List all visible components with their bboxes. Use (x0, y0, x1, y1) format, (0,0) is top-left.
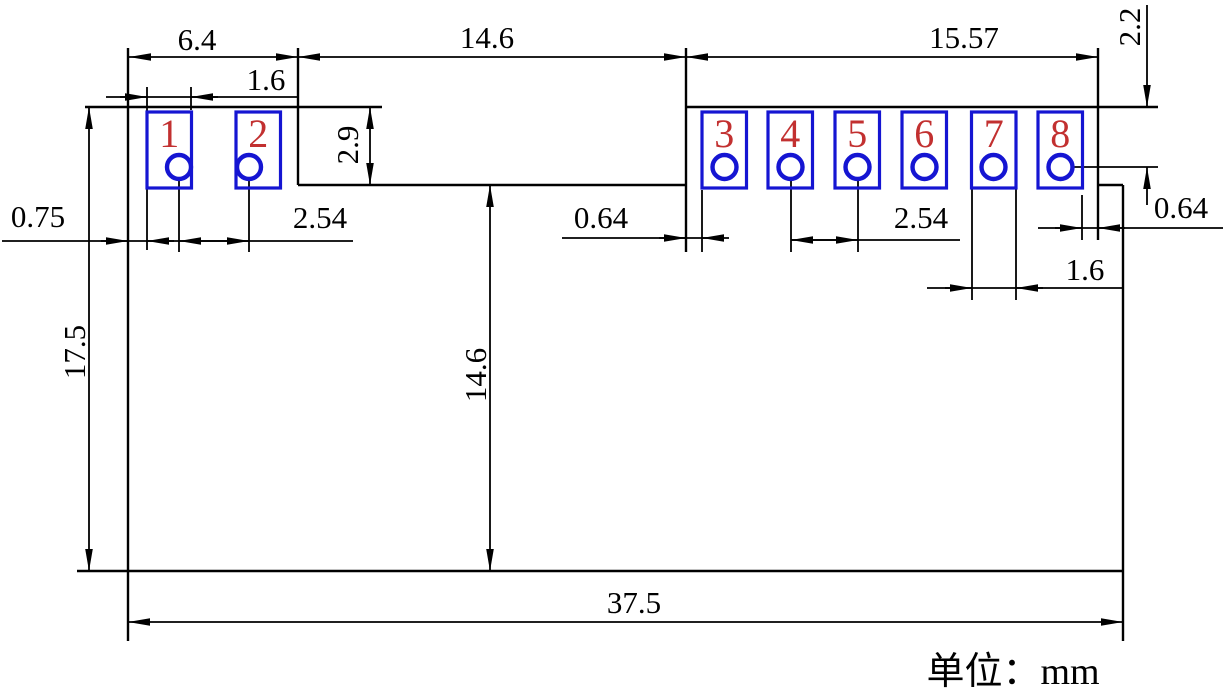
pad-hole-5 (846, 155, 870, 179)
pad-hole-4 (779, 155, 803, 179)
dim-top-to-pin-right: 2.2 (1112, 8, 1147, 47)
pin-number-8: 8 (1050, 111, 1070, 156)
pin-number-2: 2 (248, 111, 268, 156)
dim-pin-pitch-right: 2.54 (894, 200, 949, 235)
pad-hole-6 (913, 155, 937, 179)
pad-1: 1 (147, 111, 192, 188)
dim-pad-width-left: 1.6 (247, 62, 286, 97)
dimension-labels: 6.4 14.6 15.57 1.6 0.75 2.54 0.64 2.54 0… (11, 8, 1209, 692)
pad-hole-3 (713, 155, 737, 179)
pin-number-5: 5 (847, 111, 867, 156)
dim-left-step-height: 2.9 (330, 126, 365, 165)
pad-7: 7 (972, 111, 1017, 188)
pin-number-4: 4 (780, 111, 800, 156)
unit-note: 单位：mm (926, 651, 1099, 692)
dim-left-section-width: 6.4 (178, 22, 217, 57)
dim-pad-width-right: 1.6 (1066, 252, 1105, 287)
pad-hole-1 (167, 155, 191, 179)
dimension-drawing: 6.4 14.6 15.57 1.6 0.75 2.54 0.64 2.54 0… (0, 0, 1225, 692)
pin-number-6: 6 (914, 111, 934, 156)
pin-number-1: 1 (159, 111, 179, 156)
pad-4: 4 (768, 111, 813, 188)
dim-body-width: 37.5 (607, 585, 661, 620)
pad-hole-7 (982, 155, 1006, 179)
dim-pin-pitch-left: 2.54 (293, 200, 348, 235)
pad-hole-8 (1049, 155, 1073, 179)
pad-6: 6 (902, 111, 947, 188)
pad-8: 8 (1038, 111, 1083, 188)
pad-3: 3 (702, 111, 747, 188)
dim-edge-to-pad-gap: 0.75 (11, 199, 65, 234)
dim-right-section-width: 15.57 (929, 20, 999, 55)
dim-pad-to-notch-gap: 0.64 (1154, 190, 1209, 225)
dim-body-height: 17.5 (57, 325, 92, 379)
pad-5: 5 (835, 111, 880, 188)
dimension-lines (2, 5, 1223, 622)
dim-middle-section-height: 14.6 (458, 348, 493, 402)
footprint-diagram: 6.4 14.6 15.57 1.6 0.75 2.54 0.64 2.54 0… (0, 0, 1225, 692)
dim-step-to-pad-gap-mid: 0.64 (574, 200, 629, 235)
dim-middle-section-width: 14.6 (460, 20, 514, 55)
pad-2: 2 (236, 111, 281, 188)
pads-layer: 12345678 (147, 111, 1083, 188)
pin-number-7: 7 (984, 111, 1004, 156)
pin-number-3: 3 (714, 111, 734, 156)
pad-hole-2 (237, 155, 261, 179)
